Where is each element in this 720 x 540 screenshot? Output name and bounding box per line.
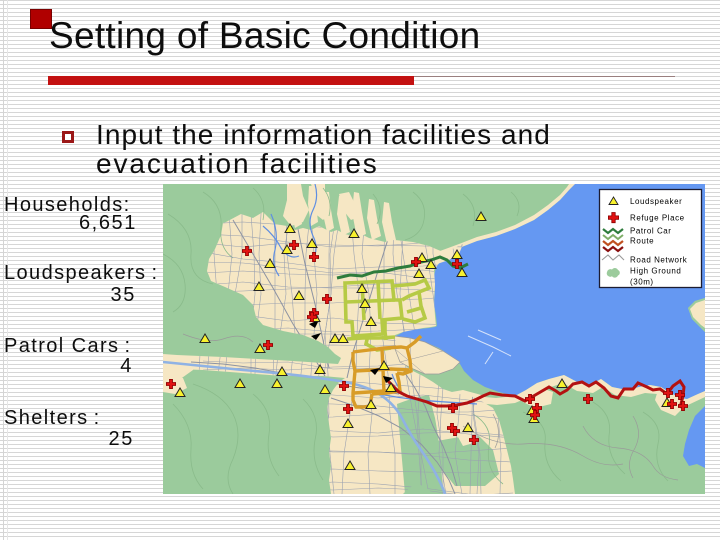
svg-text:High Ground: High Ground [630,267,681,276]
svg-text:Route: Route [630,237,654,246]
svg-text:Patrol Car: Patrol Car [630,227,672,236]
svg-text:Loudspeaker: Loudspeaker [630,197,682,206]
svg-text:(30m): (30m) [630,278,654,287]
svg-text:Road Network: Road Network [630,256,688,265]
svg-text:Refuge Place: Refuge Place [630,214,685,223]
